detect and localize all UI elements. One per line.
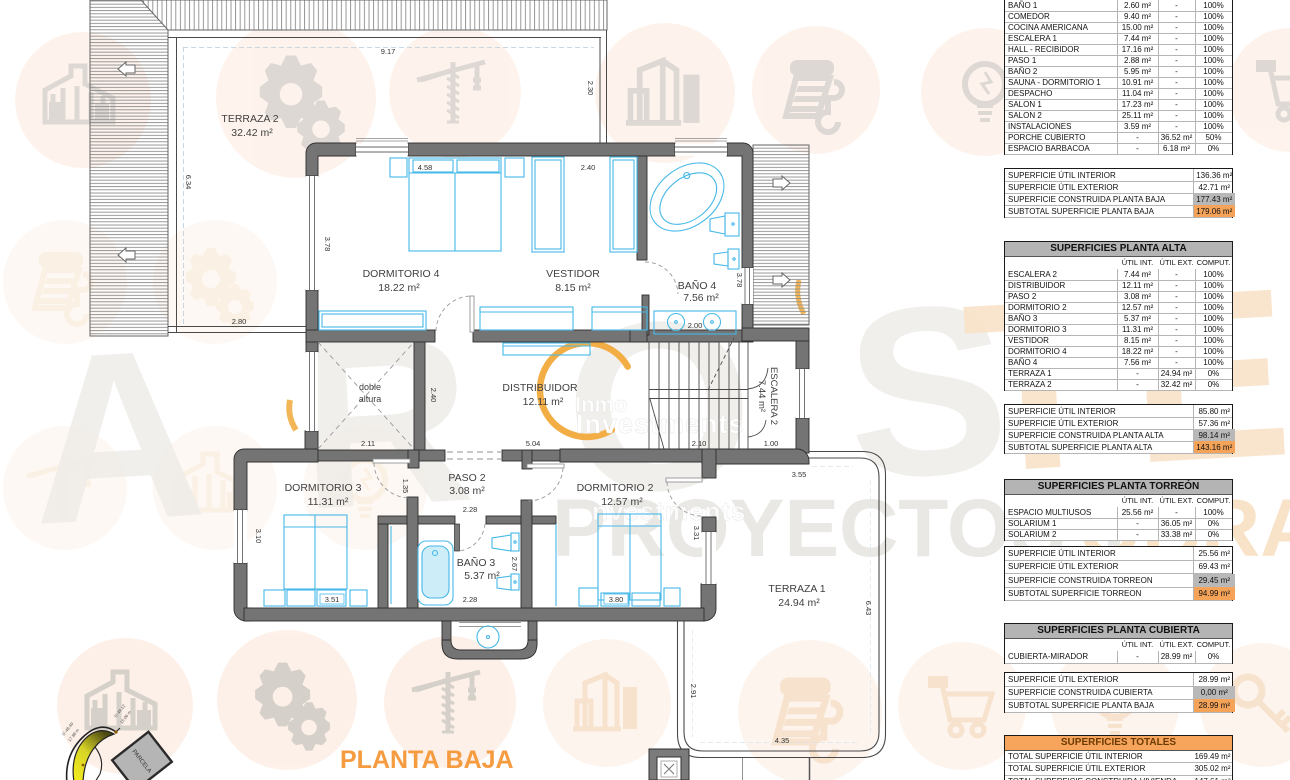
svg-text:PLANTA BAJA: PLANTA BAJA <box>340 746 514 774</box>
svg-text:3.51: 3.51 <box>325 595 340 604</box>
svg-text:BAÑO 3: BAÑO 3 <box>457 556 496 569</box>
svg-text:24.94 m²: 24.94 m² <box>778 597 820 609</box>
svg-text:2.00: 2.00 <box>688 321 703 330</box>
svg-text:PASO 2: PASO 2 <box>448 472 485 484</box>
svg-text:3.78: 3.78 <box>323 237 332 252</box>
svg-text:4.35: 4.35 <box>775 736 790 745</box>
svg-text:3.10: 3.10 <box>254 529 263 544</box>
svg-text:8.15 m²: 8.15 m² <box>555 282 591 294</box>
svg-text:2.30: 2.30 <box>586 81 595 96</box>
svg-text:2.67: 2.67 <box>510 557 519 572</box>
svg-text:BAÑO 4: BAÑO 4 <box>678 279 717 292</box>
svg-text:12.57 m²: 12.57 m² <box>601 496 643 508</box>
svg-text:DISTRIBUIDOR: DISTRIBUIDOR <box>502 382 578 394</box>
svg-text:TERRAZA 2: TERRAZA 2 <box>221 113 278 125</box>
svg-text:DORMITORIO 2: DORMITORIO 2 <box>577 482 654 494</box>
svg-text:doble: doble <box>359 382 381 392</box>
svg-text:5.04: 5.04 <box>526 439 541 448</box>
svg-text:DORMITORIO 3: DORMITORIO 3 <box>285 482 362 494</box>
svg-text:VESTIDOR: VESTIDOR <box>546 268 600 280</box>
svg-text:2.40: 2.40 <box>429 388 438 403</box>
svg-text:12.11 m²: 12.11 m² <box>523 396 564 408</box>
svg-text:5.37 m²: 5.37 m² <box>464 570 500 582</box>
svg-text:2.28: 2.28 <box>463 595 478 604</box>
svg-text:DORMITORIO 4: DORMITORIO 4 <box>363 268 440 280</box>
svg-text:32.42 m²: 32.42 m² <box>231 127 273 139</box>
svg-text:7.44 m²: 7.44 m² <box>756 380 767 412</box>
svg-text:4.58: 4.58 <box>418 163 433 172</box>
svg-text:11.31 m²: 11.31 m² <box>308 496 349 508</box>
svg-text:2.91: 2.91 <box>689 684 698 699</box>
svg-text:ESCALERA 2: ESCALERA 2 <box>768 367 779 425</box>
svg-text:7.56 m²: 7.56 m² <box>683 292 719 304</box>
svg-text:3.55: 3.55 <box>792 470 807 479</box>
svg-text:2.40: 2.40 <box>581 163 596 172</box>
svg-text:3.31: 3.31 <box>692 526 701 541</box>
svg-text:3.08 m²: 3.08 m² <box>449 485 485 497</box>
svg-text:altura: altura <box>359 394 382 404</box>
svg-text:18.22 m²: 18.22 m² <box>378 282 420 294</box>
svg-text:TERRAZA 1: TERRAZA 1 <box>768 583 825 595</box>
svg-text:6.43: 6.43 <box>864 601 873 616</box>
svg-text:2.10: 2.10 <box>692 439 707 448</box>
svg-text:9.17: 9.17 <box>381 47 396 56</box>
svg-text:2.28: 2.28 <box>463 505 478 514</box>
svg-text:2.11: 2.11 <box>361 439 375 448</box>
svg-text:1.00: 1.00 <box>764 439 779 448</box>
svg-text:1.35: 1.35 <box>401 479 410 494</box>
svg-text:3.80: 3.80 <box>609 595 624 604</box>
svg-text:6.34: 6.34 <box>184 175 193 190</box>
svg-text:2.80: 2.80 <box>232 317 247 326</box>
svg-text:3.78: 3.78 <box>735 273 744 288</box>
